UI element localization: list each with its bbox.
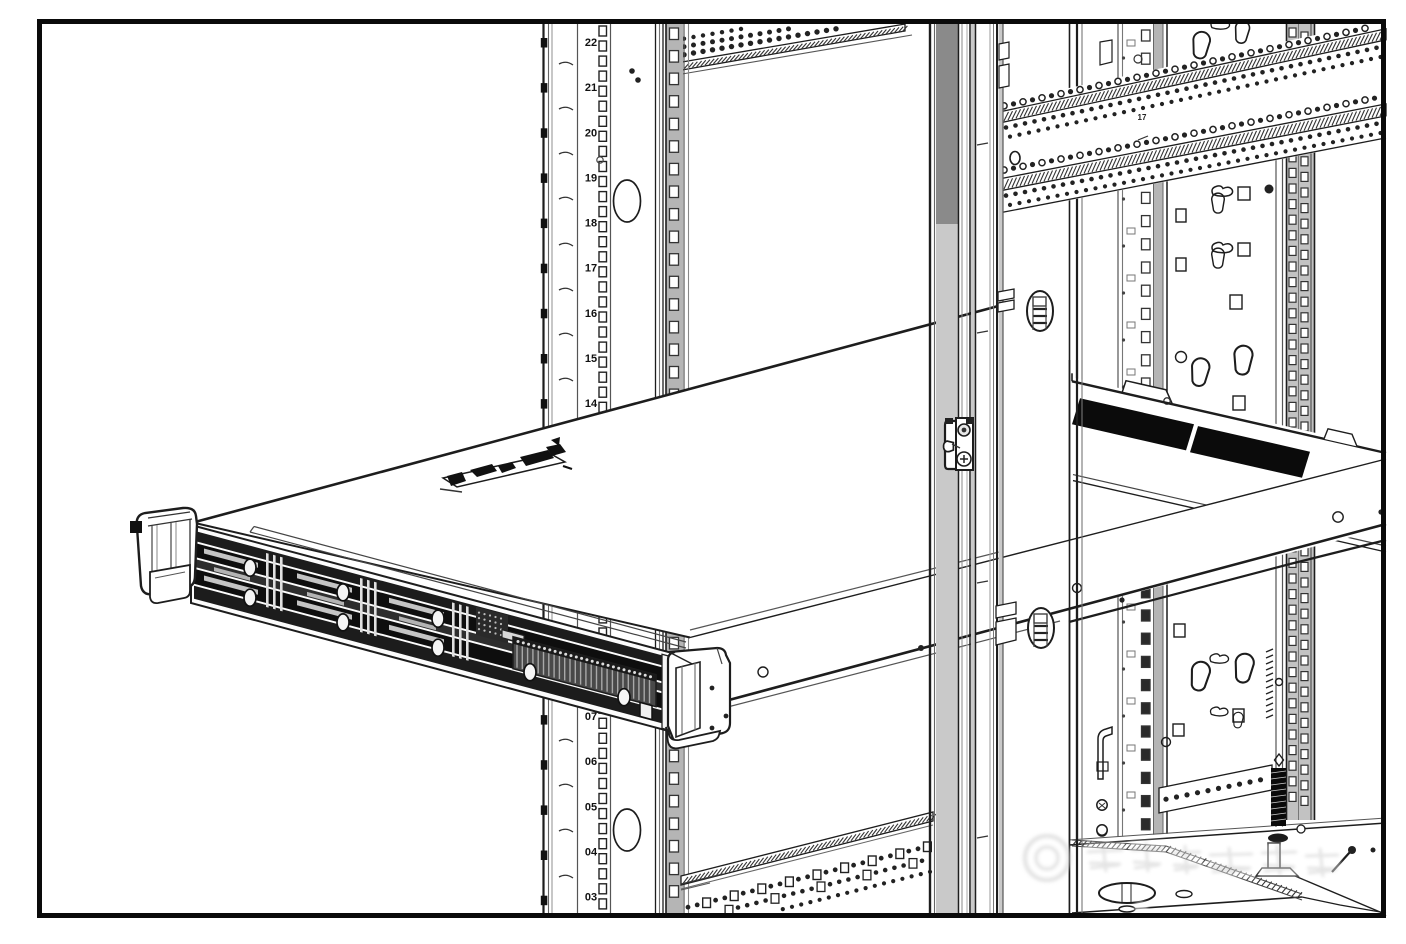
svg-text:19: 19 [585,172,597,184]
svg-text:17: 17 [585,263,597,275]
svg-text:14: 14 [585,398,598,410]
svg-text:03: 03 [585,892,597,904]
svg-text:17: 17 [1138,113,1147,122]
svg-text:04: 04 [585,846,598,858]
svg-text:16: 16 [585,308,597,320]
svg-text:07: 07 [585,711,597,723]
svg-text:18: 18 [585,218,597,230]
svg-text:05: 05 [585,801,597,813]
svg-text:15: 15 [585,353,597,365]
svg-text:06: 06 [585,756,597,768]
svg-text:22: 22 [585,37,597,49]
svg-text:20: 20 [585,127,597,139]
svg-text:21: 21 [585,82,597,94]
